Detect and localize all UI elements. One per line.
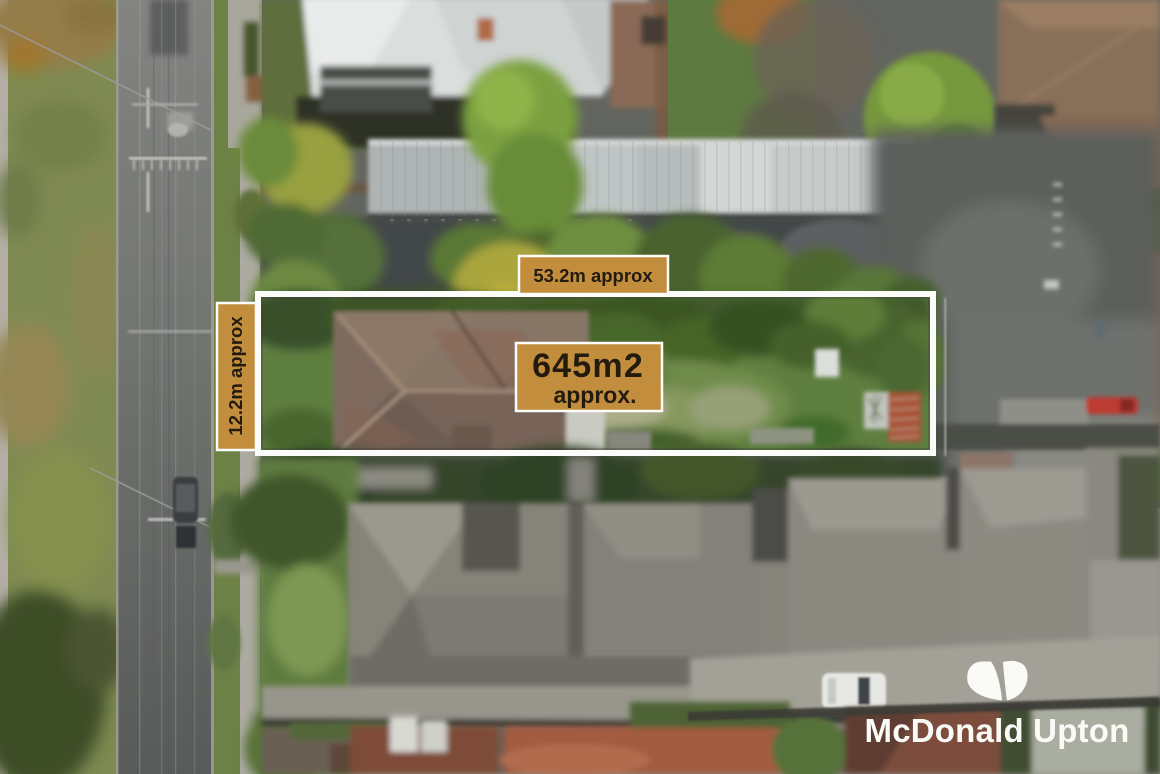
svg-text:McDonald Upton: McDonald Upton xyxy=(865,712,1130,749)
svg-text:53.2m approx: 53.2m approx xyxy=(533,265,653,286)
svg-text:approx.: approx. xyxy=(553,382,636,408)
svg-text:12.2m approx: 12.2m approx xyxy=(225,316,246,436)
svg-text:645m2: 645m2 xyxy=(532,347,644,385)
